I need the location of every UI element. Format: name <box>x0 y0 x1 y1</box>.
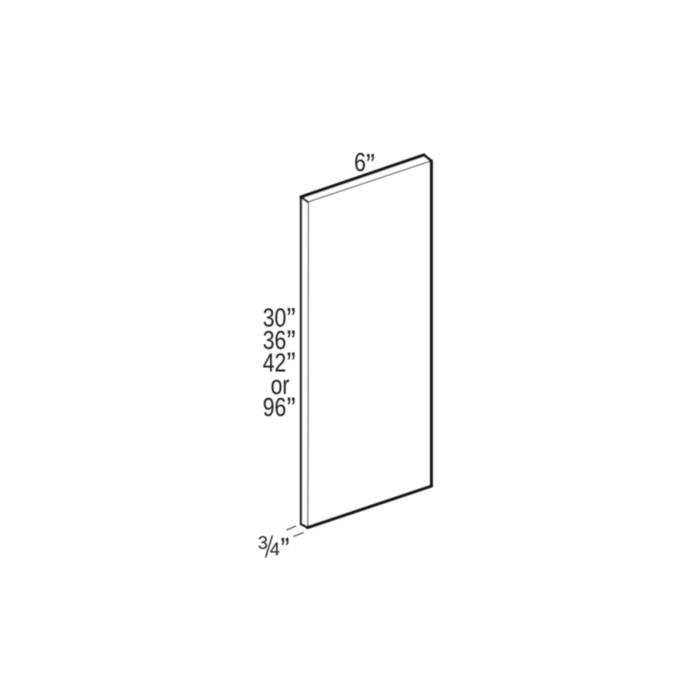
svg-text:”: ” <box>281 533 290 567</box>
svg-text:6: 6 <box>354 148 366 176</box>
svg-text:”: ” <box>287 392 296 426</box>
svg-text:4: 4 <box>270 539 280 559</box>
svg-text:”: ” <box>366 149 375 183</box>
svg-text:3: 3 <box>258 533 268 553</box>
svg-text:96: 96 <box>263 393 287 421</box>
svg-text:”: ” <box>287 347 296 381</box>
